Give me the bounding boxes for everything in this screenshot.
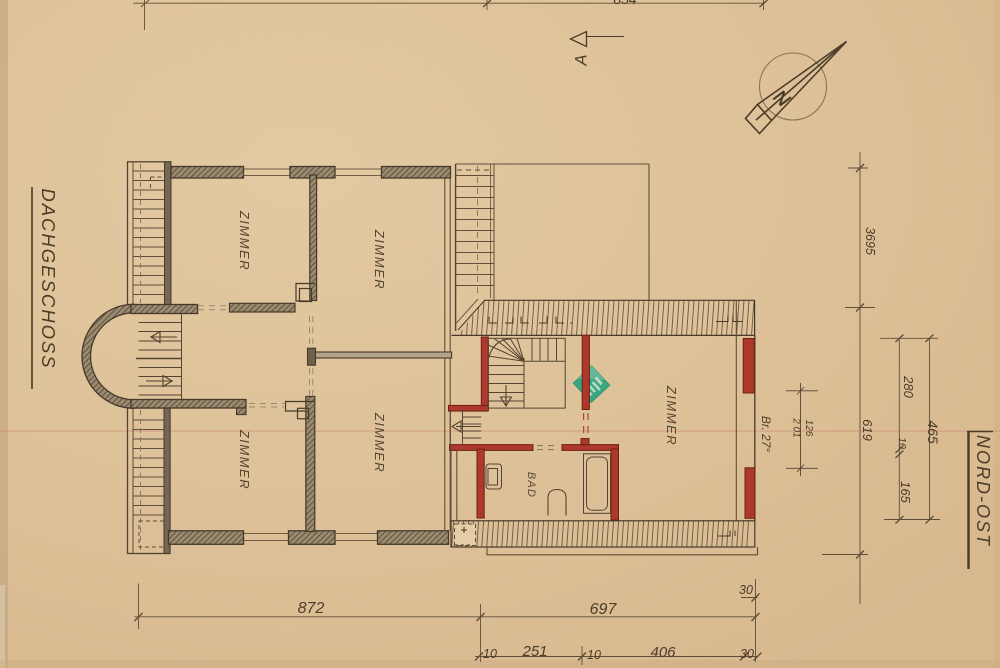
svg-text:ZIMMER: ZIMMER (372, 229, 387, 290)
svg-text:NORD-OST: NORD-OST (973, 435, 993, 547)
svg-text:ZIMMER: ZIMMER (664, 385, 679, 446)
svg-text:DACHGESCHOSS: DACHGESCHOSS (38, 188, 59, 369)
svg-text:465: 465 (925, 420, 941, 444)
svg-text:280: 280 (901, 375, 916, 398)
svg-text:2 01: 2 01 (791, 417, 802, 437)
svg-text:A: A (573, 54, 591, 66)
svg-text:251: 251 (521, 643, 547, 660)
svg-text:BAD: BAD (525, 472, 537, 498)
svg-text:10: 10 (896, 437, 908, 449)
svg-text:165: 165 (898, 481, 913, 503)
svg-text:697: 697 (590, 601, 618, 618)
svg-text:Br. 27°: Br. 27° (759, 416, 773, 453)
svg-text:10: 10 (587, 648, 601, 662)
svg-text:872: 872 (298, 600, 325, 617)
svg-text:ZIMMER: ZIMMER (237, 429, 252, 490)
svg-text:30: 30 (740, 647, 754, 661)
svg-text:ZIMMER: ZIMMER (237, 210, 252, 271)
svg-text:3695: 3695 (863, 227, 877, 255)
svg-text:30: 30 (739, 583, 753, 597)
svg-text:406: 406 (650, 644, 676, 661)
svg-text:854: 854 (613, 0, 637, 7)
svg-text:10: 10 (483, 647, 497, 661)
svg-text:619: 619 (860, 419, 875, 441)
svg-text:ZIMMER: ZIMMER (372, 412, 387, 473)
svg-text:126: 126 (803, 420, 814, 437)
